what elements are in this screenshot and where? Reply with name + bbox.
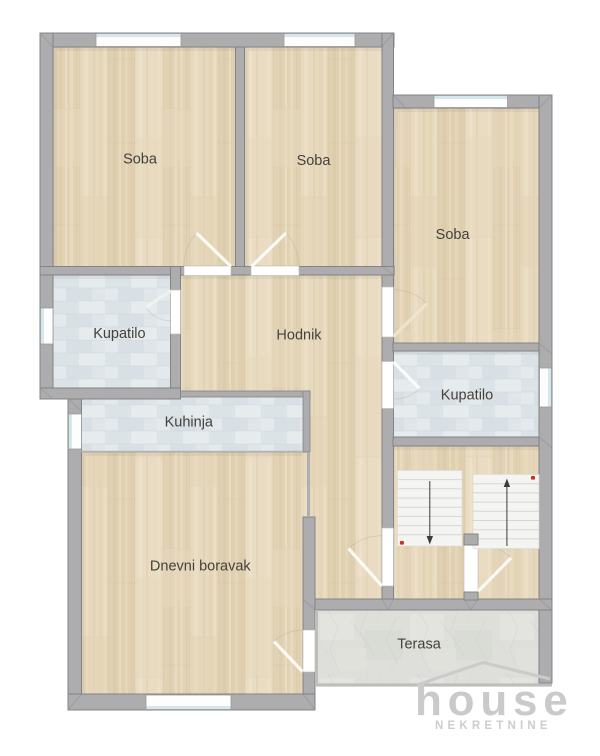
svg-text:Dnevni boravak: Dnevni boravak — [150, 559, 251, 575]
svg-text:Kupatilo: Kupatilo — [93, 326, 145, 342]
svg-text:NEKRETNINE: NEKRETNINE — [435, 720, 552, 732]
svg-text:Soba: Soba — [123, 152, 158, 168]
svg-text:Hodnik: Hodnik — [276, 328, 322, 344]
svg-text:Soba: Soba — [297, 153, 332, 169]
svg-text:Terasa: Terasa — [397, 636, 441, 652]
svg-text:house: house — [415, 676, 574, 725]
svg-text:Kuhinja: Kuhinja — [165, 414, 214, 430]
svg-text:Kupatilo: Kupatilo — [441, 387, 493, 403]
svg-text:Soba: Soba — [436, 227, 471, 243]
